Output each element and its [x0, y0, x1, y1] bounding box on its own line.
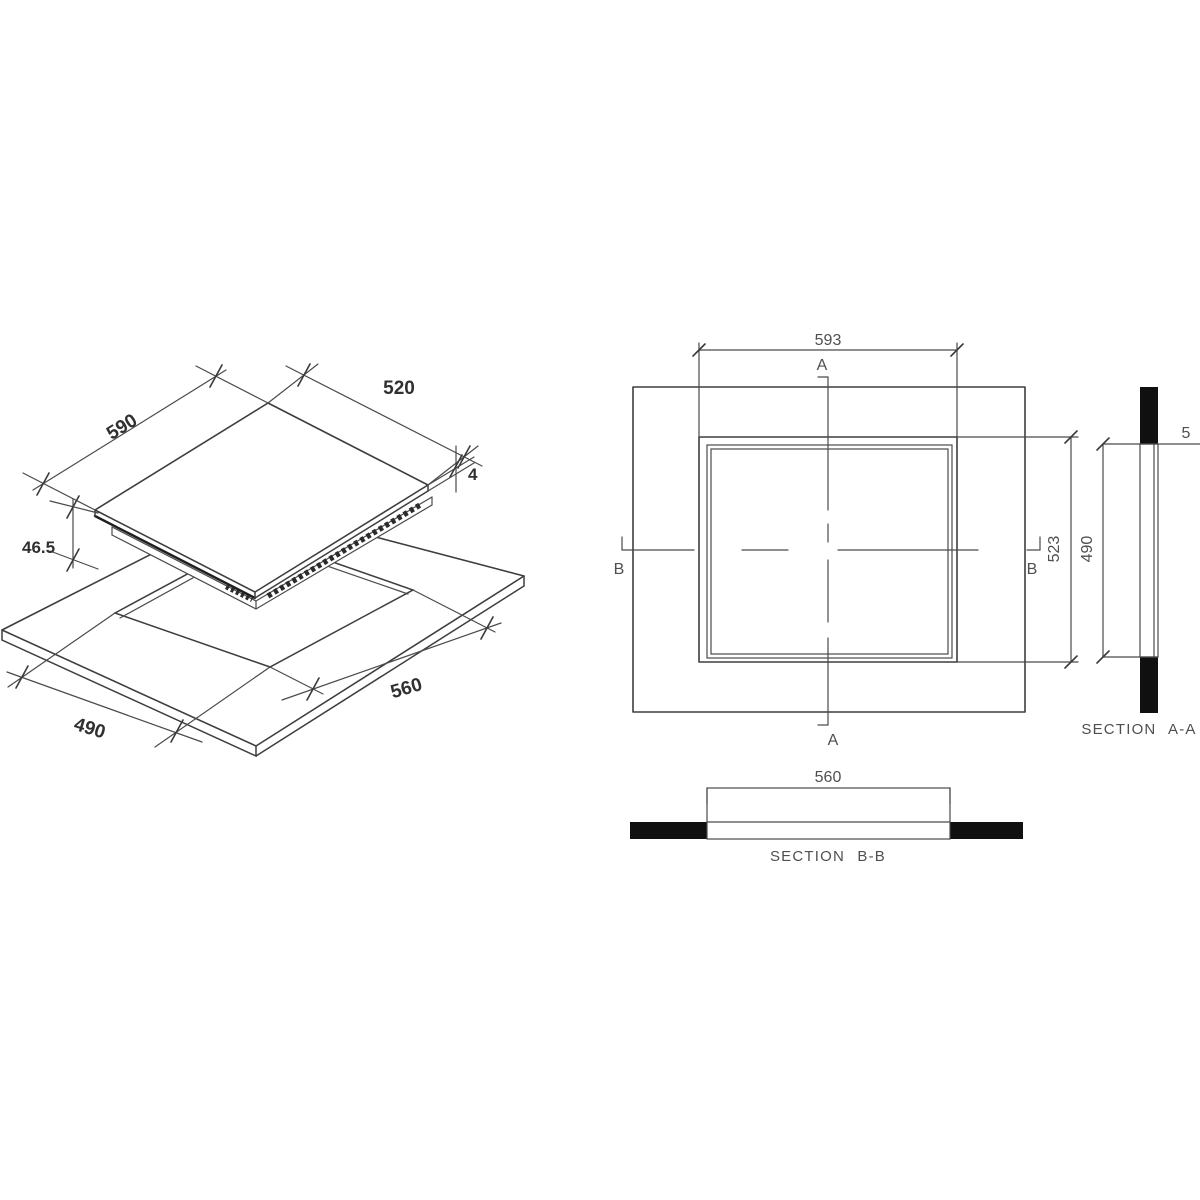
hob-installation-diagram: 590 520 4 46.5	[0, 0, 1200, 1200]
section-marker-a-bottom: A	[828, 732, 839, 749]
dim-523-label: 523	[1046, 536, 1063, 563]
section-bb-worktop-right	[950, 822, 1023, 839]
dim-490-section-label: 490	[1079, 536, 1096, 563]
dim-560-section-label: 560	[815, 769, 842, 786]
dim-5-label: 5	[1182, 425, 1191, 442]
dim-490-section: 490	[1079, 438, 1109, 663]
dim-4-label: 4	[468, 465, 478, 484]
dim-560-iso-label: 560	[388, 674, 424, 703]
dim-593-label: 593	[815, 332, 842, 349]
section-aa-worktop-bottom	[1140, 657, 1158, 713]
section-aa-hob	[1140, 444, 1158, 657]
section-marker-b-left: B	[614, 561, 625, 578]
section-bb-worktop-left	[630, 822, 707, 839]
section-aa-worktop-top	[1140, 387, 1158, 444]
dim-46-5-label: 46.5	[22, 538, 55, 557]
dim-4: 4	[428, 446, 478, 492]
section-marker-b-right: B	[1027, 561, 1038, 578]
isometric-view: 590 520 4 46.5	[2, 364, 524, 756]
section-bb-view: 560 SECTION B-B	[630, 769, 1023, 865]
dim-46-5: 46.5	[22, 496, 98, 571]
section-bb-title: SECTION B-B	[770, 848, 886, 865]
dim-520-label: 520	[383, 378, 415, 399]
plan-view: 593 523 A A B B	[614, 332, 1078, 749]
dim-590-label: 590	[103, 410, 141, 444]
dim-490-iso-label: 490	[71, 714, 107, 743]
section-aa-title: SECTION A-A	[1081, 721, 1196, 738]
section-aa-view: 490 5 SECTION A-A	[1079, 387, 1200, 738]
section-marker-a-top: A	[817, 357, 828, 374]
section-bb-hob	[707, 788, 950, 839]
